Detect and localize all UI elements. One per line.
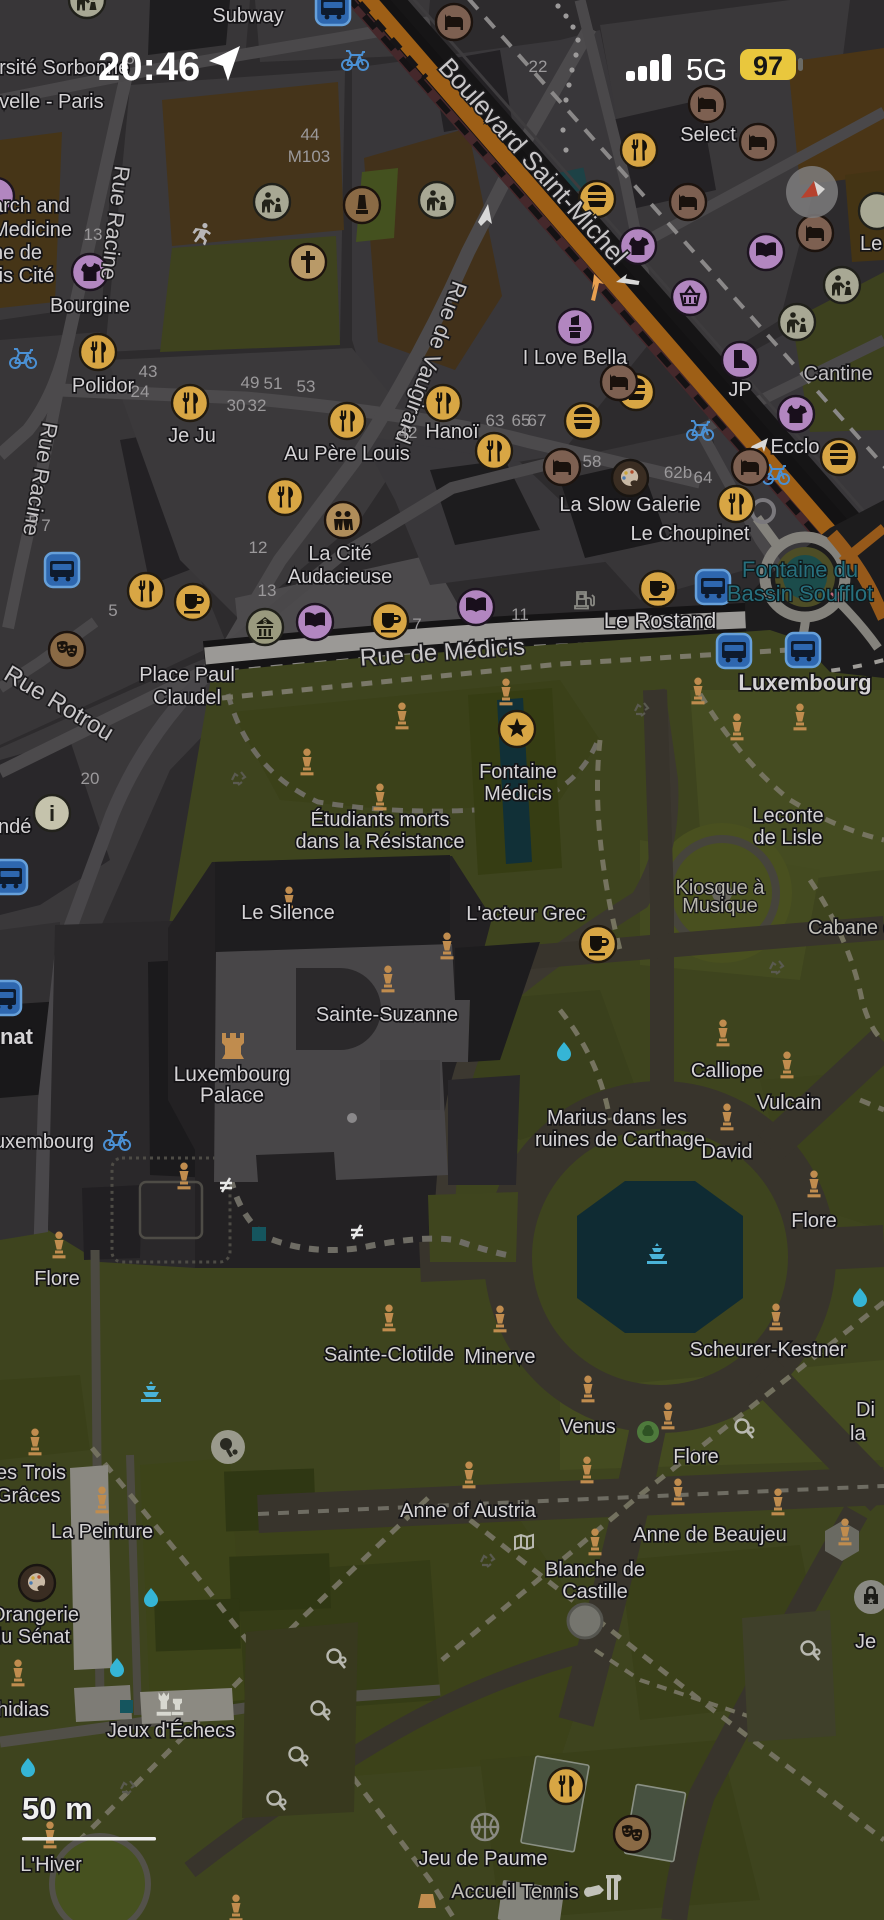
svg-text:ne de: ne de [0,242,42,264]
svg-text:Grâces: Grâces [0,1485,60,1507]
svg-text:97: 97 [753,51,783,81]
svg-text:Palace: Palace [200,1084,264,1107]
svg-text:ndé: ndé [0,816,31,838]
svg-text:13: 13 [258,581,277,600]
svg-text:Scheurer-Kestner: Scheurer-Kestner [690,1339,847,1361]
svg-text:Orangerie: Orangerie [0,1604,79,1626]
svg-text:58: 58 [583,452,602,471]
svg-text:M103: M103 [288,147,331,166]
svg-text:64: 64 [694,468,713,487]
svg-text:Subway: Subway [212,5,283,27]
svg-text:de Lisle: de Lisle [754,827,823,849]
svg-text:20:46: 20:46 [98,45,200,89]
svg-text:Ecclo: Ecclo [771,436,820,458]
svg-text:Le Choupinet: Le Choupinet [631,523,750,545]
svg-text:Minerve: Minerve [464,1346,535,1368]
svg-text:Flore: Flore [34,1268,80,1290]
svg-text:11: 11 [511,605,529,624]
svg-text:5: 5 [28,512,37,531]
svg-text:Calliope: Calliope [691,1060,763,1082]
svg-text:Claudel: Claudel [153,687,221,709]
svg-text:hidias: hidias [0,1699,49,1721]
svg-text:Vulcain: Vulcain [757,1092,822,1114]
svg-text:Marius dans les: Marius dans les [547,1107,687,1129]
svg-text:50 m: 50 m [22,1791,93,1826]
svg-text:la: la [850,1423,866,1445]
svg-text:13: 13 [84,225,103,244]
svg-text:51: 51 [264,374,283,393]
svg-text:Fontaine: Fontaine [479,761,557,783]
svg-text:43: 43 [139,362,158,381]
svg-text:Cantine: Cantine [804,363,873,385]
svg-text:49: 49 [241,373,260,392]
svg-text:22: 22 [529,57,548,76]
svg-text:uxembourg: uxembourg [0,1131,94,1153]
svg-text:Audacieuse: Audacieuse [288,566,393,588]
svg-text:Bourgine: Bourgine [50,295,130,317]
svg-text:42: 42 [399,423,418,442]
svg-text:Étudiants morts: Étudiants morts [311,808,450,831]
svg-text:ris Cité: ris Cité [0,265,54,287]
svg-text:Hanoï: Hanoï [425,421,479,443]
svg-text:uvelle - Paris: uvelle - Paris [0,91,104,113]
svg-text:30: 30 [227,396,246,415]
svg-text:20: 20 [81,769,100,788]
svg-text:Le: Le [860,233,882,255]
svg-text:Au Père Louis: Au Père Louis [284,443,410,465]
svg-text:67: 67 [528,411,547,430]
svg-text:44: 44 [301,125,320,144]
svg-text:David: David [701,1141,752,1163]
svg-text:Cabane du: Cabane du [808,917,884,939]
svg-text:Accueil Tennis: Accueil Tennis [451,1881,578,1903]
svg-text:Je: Je [855,1631,876,1653]
svg-text:Jeu de Paume: Jeu de Paume [419,1848,548,1870]
svg-text:Luxembourg: Luxembourg [174,1063,291,1086]
svg-text:7: 7 [412,615,421,634]
svg-text:Polidor: Polidor [72,375,135,397]
svg-text:12: 12 [249,538,268,557]
svg-text:L'acteur Grec: L'acteur Grec [466,903,585,925]
svg-text:dans la Résistance: dans la Résistance [296,831,465,853]
svg-text:62b: 62b [664,463,692,482]
svg-text:63: 63 [486,411,505,430]
svg-text:JP: JP [728,379,751,401]
svg-text:Anne of Austria: Anne of Austria [400,1500,537,1522]
svg-text:Flore: Flore [673,1446,719,1468]
svg-text:Bassin Soufflot: Bassin Soufflot [727,581,873,606]
svg-text:Sainte-Suzanne: Sainte-Suzanne [316,1004,458,1026]
svg-text:nat: nat [0,1024,34,1049]
svg-text:Le Silence: Le Silence [241,902,334,924]
svg-text:32: 32 [248,396,267,415]
svg-text:Fontaine du: Fontaine du [742,557,858,582]
svg-text:Venus: Venus [560,1416,616,1438]
svg-text:Place Paul: Place Paul [139,664,235,686]
svg-text:Jeux d'Échecs: Jeux d'Échecs [107,1719,235,1742]
svg-text:Flore: Flore [791,1210,837,1232]
svg-text:Castille: Castille [562,1581,628,1603]
svg-text:Le Rostand: Le Rostand [604,608,717,633]
svg-text:I Love Bella: I Love Bella [523,347,628,369]
svg-text:Medicine: Medicine [0,219,72,241]
svg-text:Di: Di [856,1399,875,1421]
svg-text:L'Hiver: L'Hiver [20,1854,82,1876]
svg-text:5: 5 [108,601,117,620]
svg-text:arch and: arch and [0,195,70,217]
svg-text:Luxembourg: Luxembourg [738,670,871,695]
svg-text:5G: 5G [686,52,727,87]
svg-text:La Peinture: La Peinture [51,1521,153,1543]
svg-text:Je Ju: Je Ju [168,425,216,447]
svg-text:Blanche de: Blanche de [545,1559,645,1581]
svg-text:Anne de Beaujeu: Anne de Beaujeu [633,1524,786,1546]
svg-text:Leconte: Leconte [752,805,823,827]
svg-text:La Slow Galerie: La Slow Galerie [559,494,700,516]
svg-text:du Sénat: du Sénat [0,1626,71,1648]
svg-text:ruines de Carthage: ruines de Carthage [535,1129,705,1151]
svg-text:es Trois: es Trois [0,1462,66,1484]
svg-text:La Cité: La Cité [308,543,371,565]
svg-text:Sainte-Clotilde: Sainte-Clotilde [324,1344,454,1366]
svg-text:7: 7 [41,516,50,535]
svg-text:24: 24 [131,382,150,401]
svg-text:Musique: Musique [682,895,758,917]
svg-text:Select: Select [680,124,736,146]
svg-text:53: 53 [297,377,316,396]
svg-text:Médicis: Médicis [484,783,552,805]
